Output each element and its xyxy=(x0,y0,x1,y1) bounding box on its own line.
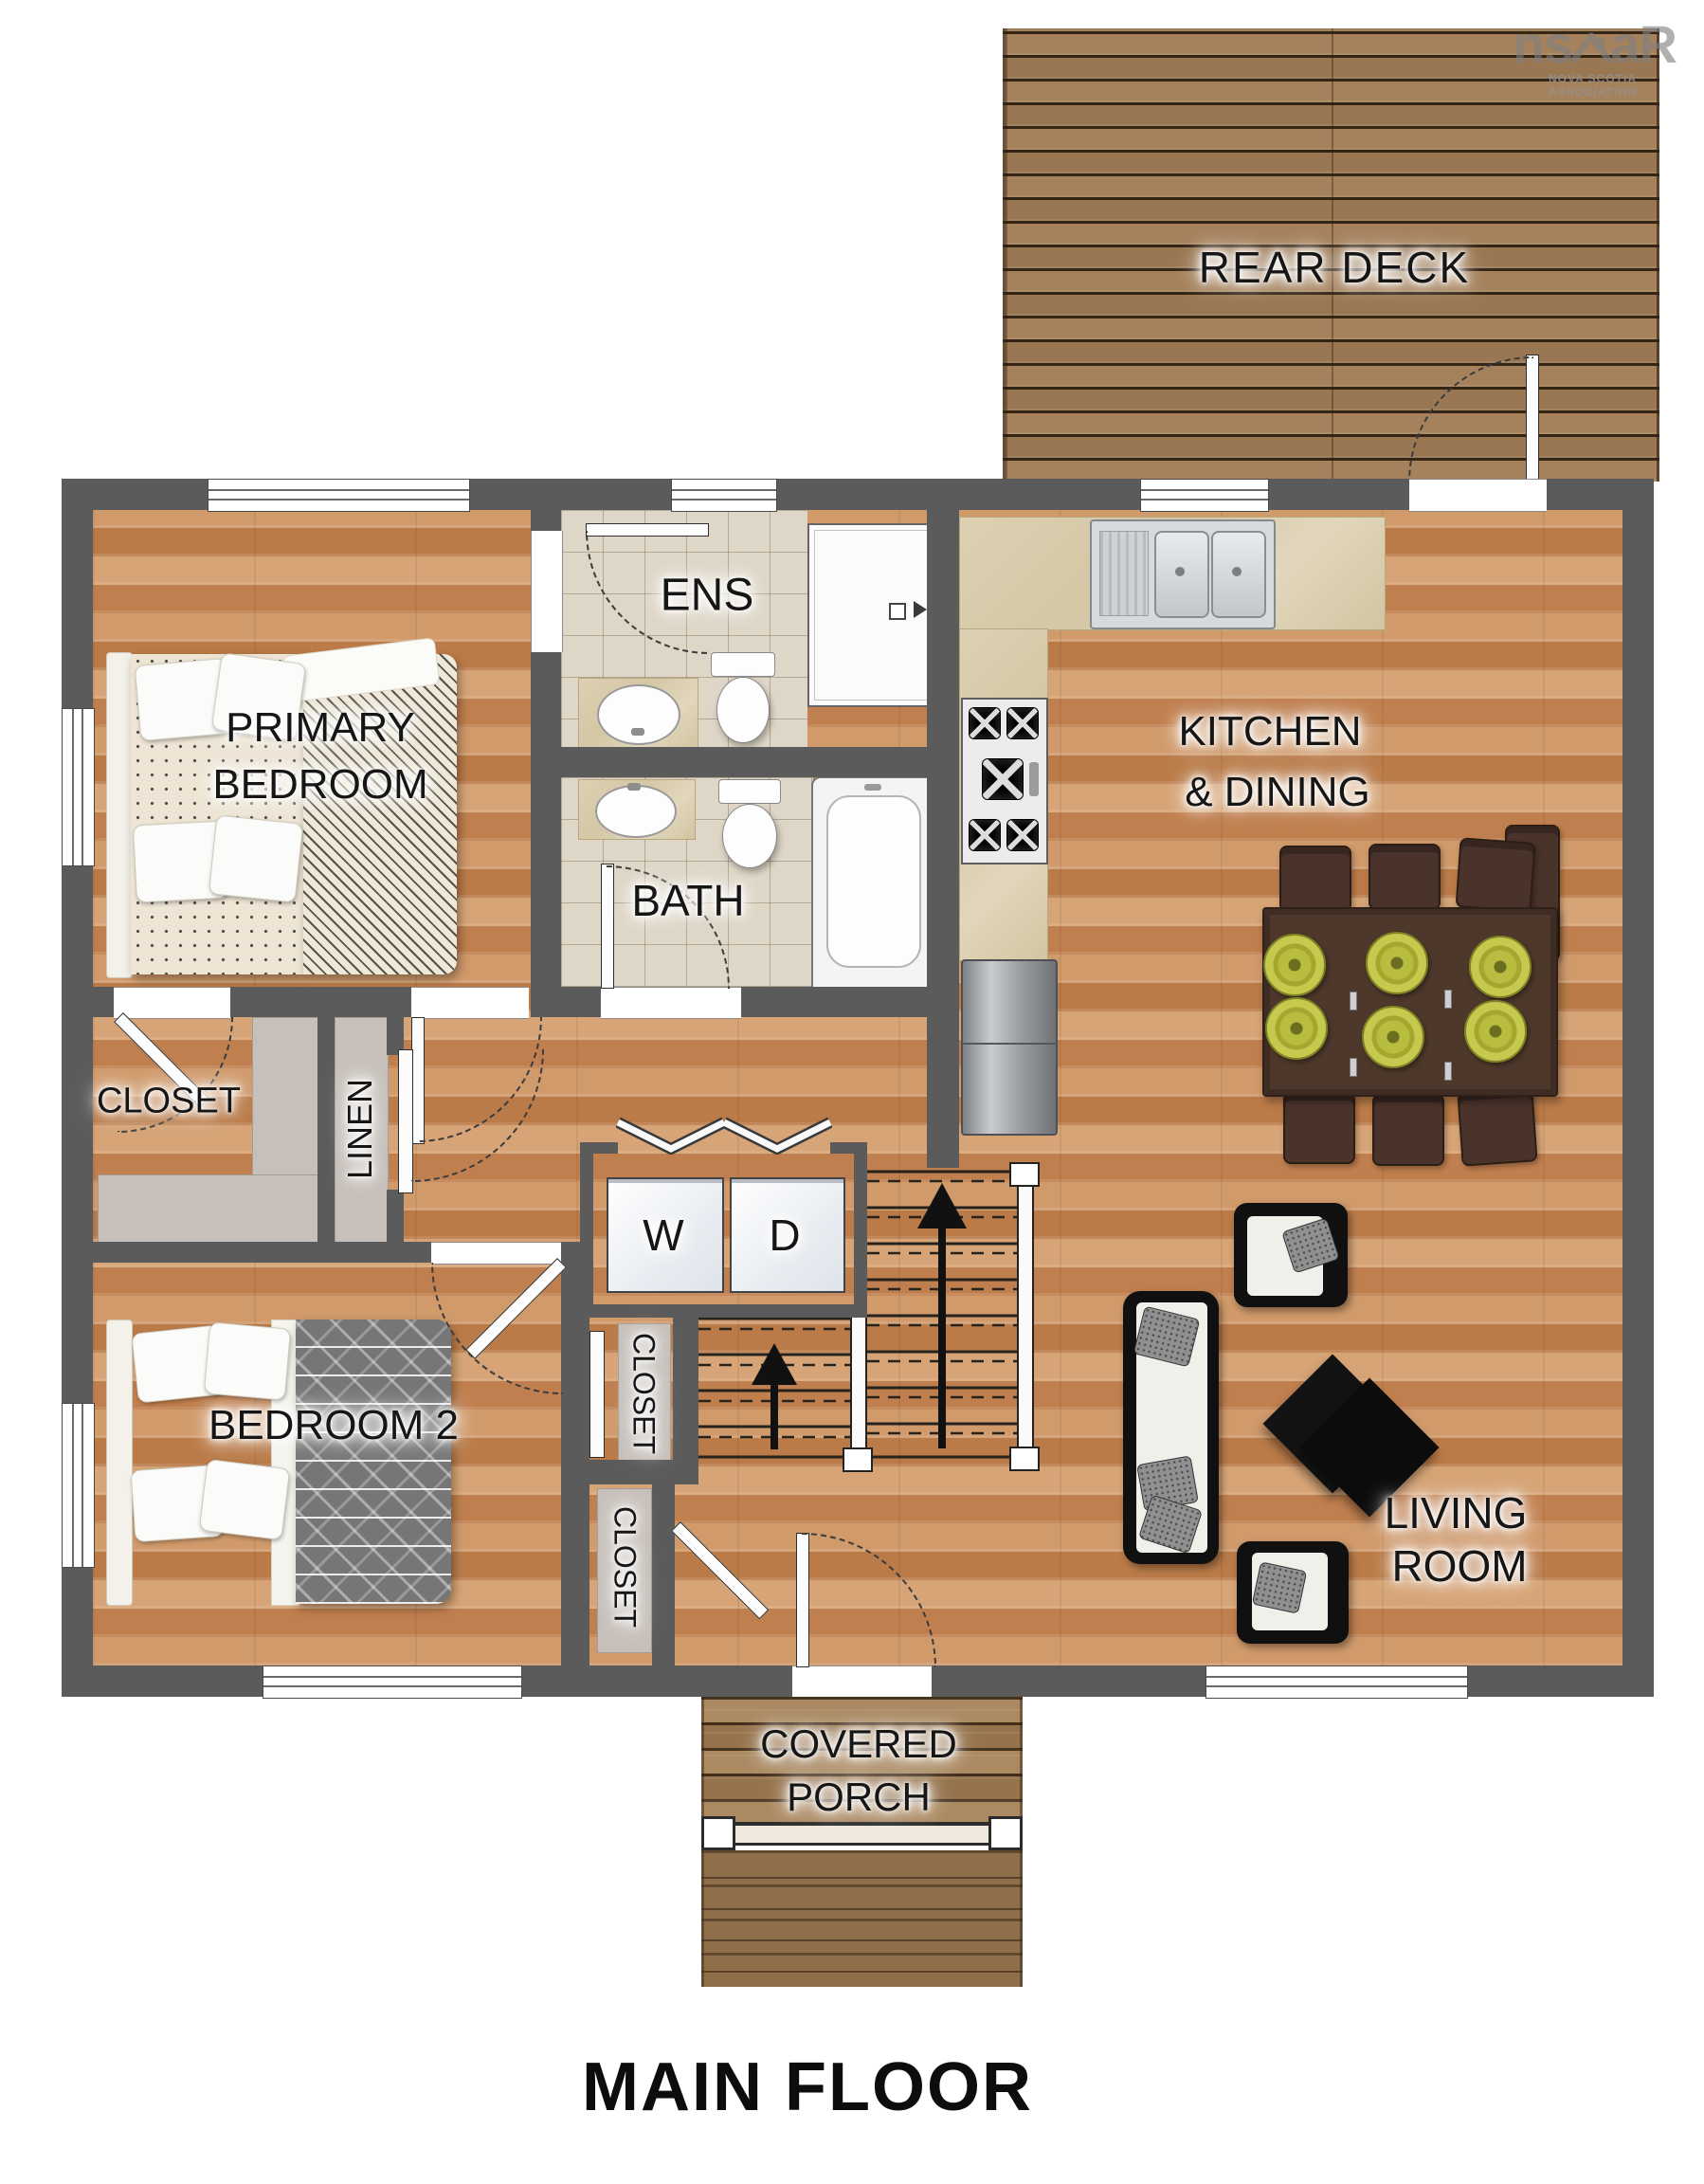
porch-label-line2: PORCH xyxy=(787,1774,931,1820)
bathtub xyxy=(811,776,936,996)
bath-toilet-tank xyxy=(718,779,781,804)
bed2-duvet-arrow-pattern xyxy=(296,1319,451,1604)
sink-drainboard xyxy=(1099,531,1149,616)
armchair xyxy=(1237,1541,1349,1644)
armchair-pillow xyxy=(1252,1561,1307,1613)
wall xyxy=(93,987,114,1017)
wall xyxy=(652,1484,675,1665)
wall xyxy=(317,1017,335,1242)
wall xyxy=(531,652,561,1017)
wall xyxy=(927,510,959,1168)
porch-railing-post xyxy=(988,1816,1023,1850)
hall-closet-door xyxy=(589,1331,605,1458)
window xyxy=(62,708,95,866)
stair-railing-post xyxy=(1009,1162,1040,1187)
sofa xyxy=(1123,1291,1219,1564)
ensuite-toilet-bowl xyxy=(716,677,770,743)
shower-door-indicator xyxy=(914,601,927,618)
deck-door-opening xyxy=(1409,479,1547,512)
front-door-opening xyxy=(792,1665,932,1699)
dining-chair xyxy=(1283,1092,1355,1164)
shower-stall xyxy=(807,523,934,707)
bedroom2-label: BEDROOM 2 xyxy=(208,1402,459,1449)
wall xyxy=(830,1142,867,1154)
stair-railing xyxy=(1017,1168,1034,1464)
washer-label: W xyxy=(643,1210,683,1261)
porch-label-line1: COVERED xyxy=(760,1721,957,1767)
laundry-bifold-doors xyxy=(616,1117,832,1155)
fridge-door-split xyxy=(963,1043,1056,1045)
armchair xyxy=(1234,1203,1348,1307)
cutlery xyxy=(1350,992,1357,1010)
ensuite-door-opening xyxy=(531,531,563,652)
place-setting xyxy=(1464,1000,1527,1063)
primary-closet-shelf-bottom xyxy=(98,1174,319,1244)
window xyxy=(263,1665,522,1699)
linen-label: LINEN xyxy=(340,1079,380,1179)
ensuite-label: ENS xyxy=(661,570,754,622)
cooktop-controls xyxy=(1029,762,1039,796)
dining-chair xyxy=(1369,844,1441,910)
window xyxy=(671,479,777,512)
floor-plan: REAR DECK ns aR NOVA SCOTIA ASSOCIATION xyxy=(0,0,1704,2184)
porch-steps xyxy=(701,1850,1023,1987)
sink-drain-dot xyxy=(1175,567,1185,576)
primary-bed-headboard xyxy=(106,652,133,978)
window xyxy=(1205,1665,1468,1699)
bathtub-faucet xyxy=(864,784,881,791)
bed-pillow xyxy=(204,1321,291,1400)
cutlery xyxy=(1444,1062,1452,1081)
logo-text-left: ns xyxy=(1513,13,1572,75)
porch-railing xyxy=(716,1822,1001,1846)
ensuite-faucet xyxy=(631,728,644,736)
dining-chair xyxy=(1372,1094,1444,1166)
primary-bedroom-label-line2: BEDROOM xyxy=(212,761,427,809)
window xyxy=(62,1403,95,1568)
nsar-org-line: NOVA SCOTIA ASSOCIATION xyxy=(1549,72,1704,99)
exterior-wall-right xyxy=(1622,479,1654,1697)
kitchen-label-line1: KITCHEN xyxy=(1178,708,1361,755)
wall xyxy=(561,747,959,777)
window xyxy=(1140,479,1269,512)
porch-railing-post xyxy=(701,1816,735,1850)
wall xyxy=(387,1190,404,1242)
ensuite-sink xyxy=(597,684,680,745)
bed-pillow xyxy=(208,814,303,902)
bed2-headboard xyxy=(106,1319,133,1606)
window xyxy=(208,479,470,512)
stairs-lower-flight xyxy=(698,1315,850,1460)
bedroom2-door-opening xyxy=(431,1242,561,1265)
bath-faucet xyxy=(627,783,641,791)
primary-bed-duvet-striped xyxy=(303,654,457,974)
closet-door-opening xyxy=(114,987,230,1019)
place-setting xyxy=(1265,997,1328,1060)
wall xyxy=(580,1142,618,1154)
stairs-upper-flight xyxy=(867,1168,1017,1460)
kitchen-sink xyxy=(1090,519,1276,629)
wall xyxy=(561,1460,698,1484)
stairs-up-arrowhead xyxy=(917,1183,967,1228)
bathtub-basin xyxy=(826,795,921,968)
wall xyxy=(580,1304,867,1318)
bath-label: BATH xyxy=(631,875,744,926)
rear-deck-label: REAR DECK xyxy=(1199,242,1470,293)
stair-railing-post xyxy=(1009,1447,1040,1471)
hall-closet-lower-label: CLOSET xyxy=(607,1506,643,1628)
house-roof-icon xyxy=(1569,27,1613,71)
bath-sink xyxy=(595,785,677,838)
dining-chair xyxy=(1457,1087,1537,1166)
place-setting xyxy=(1362,1006,1424,1068)
shower-inner-line xyxy=(814,530,928,701)
wall xyxy=(230,987,411,1017)
place-setting xyxy=(1263,934,1326,996)
wall xyxy=(531,510,561,531)
stair-railing xyxy=(850,1311,867,1466)
hall-closet-upper-label: CLOSET xyxy=(626,1333,662,1454)
place-setting xyxy=(1469,936,1532,998)
shower-drain xyxy=(889,603,906,620)
wall xyxy=(673,1318,698,1475)
bath-door-opening xyxy=(601,987,741,1019)
dining-chair xyxy=(1279,846,1351,912)
living-room-label-line1: LIVING xyxy=(1385,1487,1528,1538)
logo-text-right: aR xyxy=(1610,13,1677,75)
wall xyxy=(93,1242,431,1263)
cutlery xyxy=(1350,1058,1357,1077)
cutlery xyxy=(1444,990,1452,1009)
kitchen-label-line2: & DINING xyxy=(1185,769,1370,816)
cooktop xyxy=(961,698,1048,864)
plan-title: MAIN FLOOR xyxy=(582,2048,1033,2126)
wall xyxy=(854,1142,867,1318)
bed-pillow xyxy=(199,1459,291,1540)
nsar-logo: ns aR xyxy=(1513,13,1677,75)
living-room-label-line2: ROOM xyxy=(1391,1540,1527,1592)
ensuite-toilet-tank xyxy=(711,652,775,677)
stair-railing-post xyxy=(843,1447,873,1472)
wall xyxy=(561,987,601,1017)
primary-closet-label: CLOSET xyxy=(97,1082,241,1122)
place-setting xyxy=(1366,932,1428,994)
primary-bedroom-door-opening xyxy=(411,987,529,1019)
dining-chair xyxy=(1456,837,1536,912)
refrigerator xyxy=(961,959,1058,1136)
wall xyxy=(580,1142,593,1318)
bath-toilet-bowl xyxy=(722,804,777,868)
dryer-label: D xyxy=(769,1210,800,1261)
sink-drain-dot xyxy=(1232,567,1242,576)
primary-bedroom-label-line1: PRIMARY xyxy=(226,704,415,752)
wall xyxy=(741,987,959,1017)
